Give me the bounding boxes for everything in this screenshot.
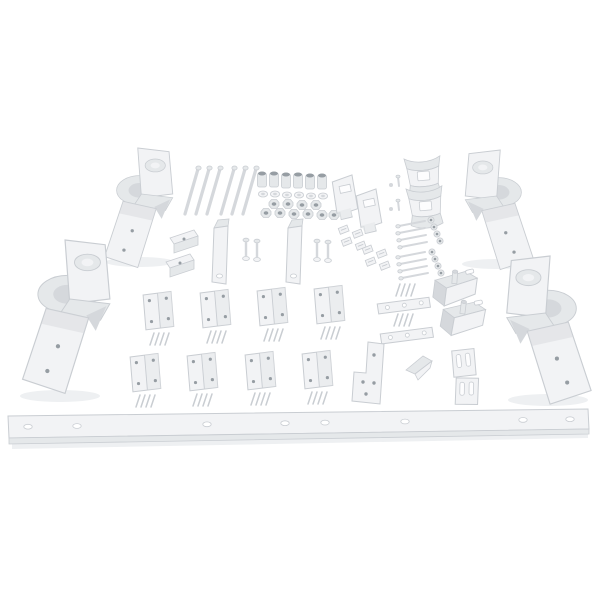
spacer-group bbox=[258, 172, 327, 190]
corner-bracket-mid-left bbox=[23, 240, 110, 393]
loose-screws bbox=[394, 314, 413, 326]
slotted-end-plate bbox=[450, 347, 478, 379]
vertical-strap-bracket bbox=[286, 219, 303, 284]
corner-bracket-upper-left bbox=[105, 148, 173, 268]
slotted-p-bracket bbox=[356, 189, 382, 234]
slotted-end-plate bbox=[451, 374, 482, 408]
three-hole-strap bbox=[377, 297, 431, 314]
corner-bracket-mid-right bbox=[507, 256, 591, 404]
washer-group bbox=[258, 191, 327, 199]
three-hole-strap bbox=[380, 327, 434, 344]
main-mounting-rail bbox=[8, 409, 589, 449]
loose-screws bbox=[396, 284, 415, 296]
u-nut-clip-group bbox=[338, 225, 390, 271]
hex-bolt-pair bbox=[243, 238, 261, 261]
product-photo: Product photo of a white powder-coated m… bbox=[0, 0, 600, 600]
chevron-bracket bbox=[406, 356, 432, 380]
long-bolt-group bbox=[185, 166, 259, 214]
l-angle-clip bbox=[170, 230, 198, 253]
notched-plate bbox=[352, 342, 384, 404]
screw-and-nut-set bbox=[396, 249, 444, 280]
hex-bolt-pair bbox=[314, 239, 332, 262]
hardware-kit-illustration bbox=[0, 0, 600, 600]
l-angle-clip bbox=[166, 254, 194, 277]
hinge-plate-row-1 bbox=[143, 285, 345, 345]
small-screw-with-nut-group bbox=[389, 175, 400, 211]
hinge-plate-row-2 bbox=[130, 350, 333, 407]
vertical-strap-bracket bbox=[212, 219, 229, 284]
corner-bracket-upper-right bbox=[465, 150, 533, 270]
hex-nut-group bbox=[261, 200, 339, 220]
